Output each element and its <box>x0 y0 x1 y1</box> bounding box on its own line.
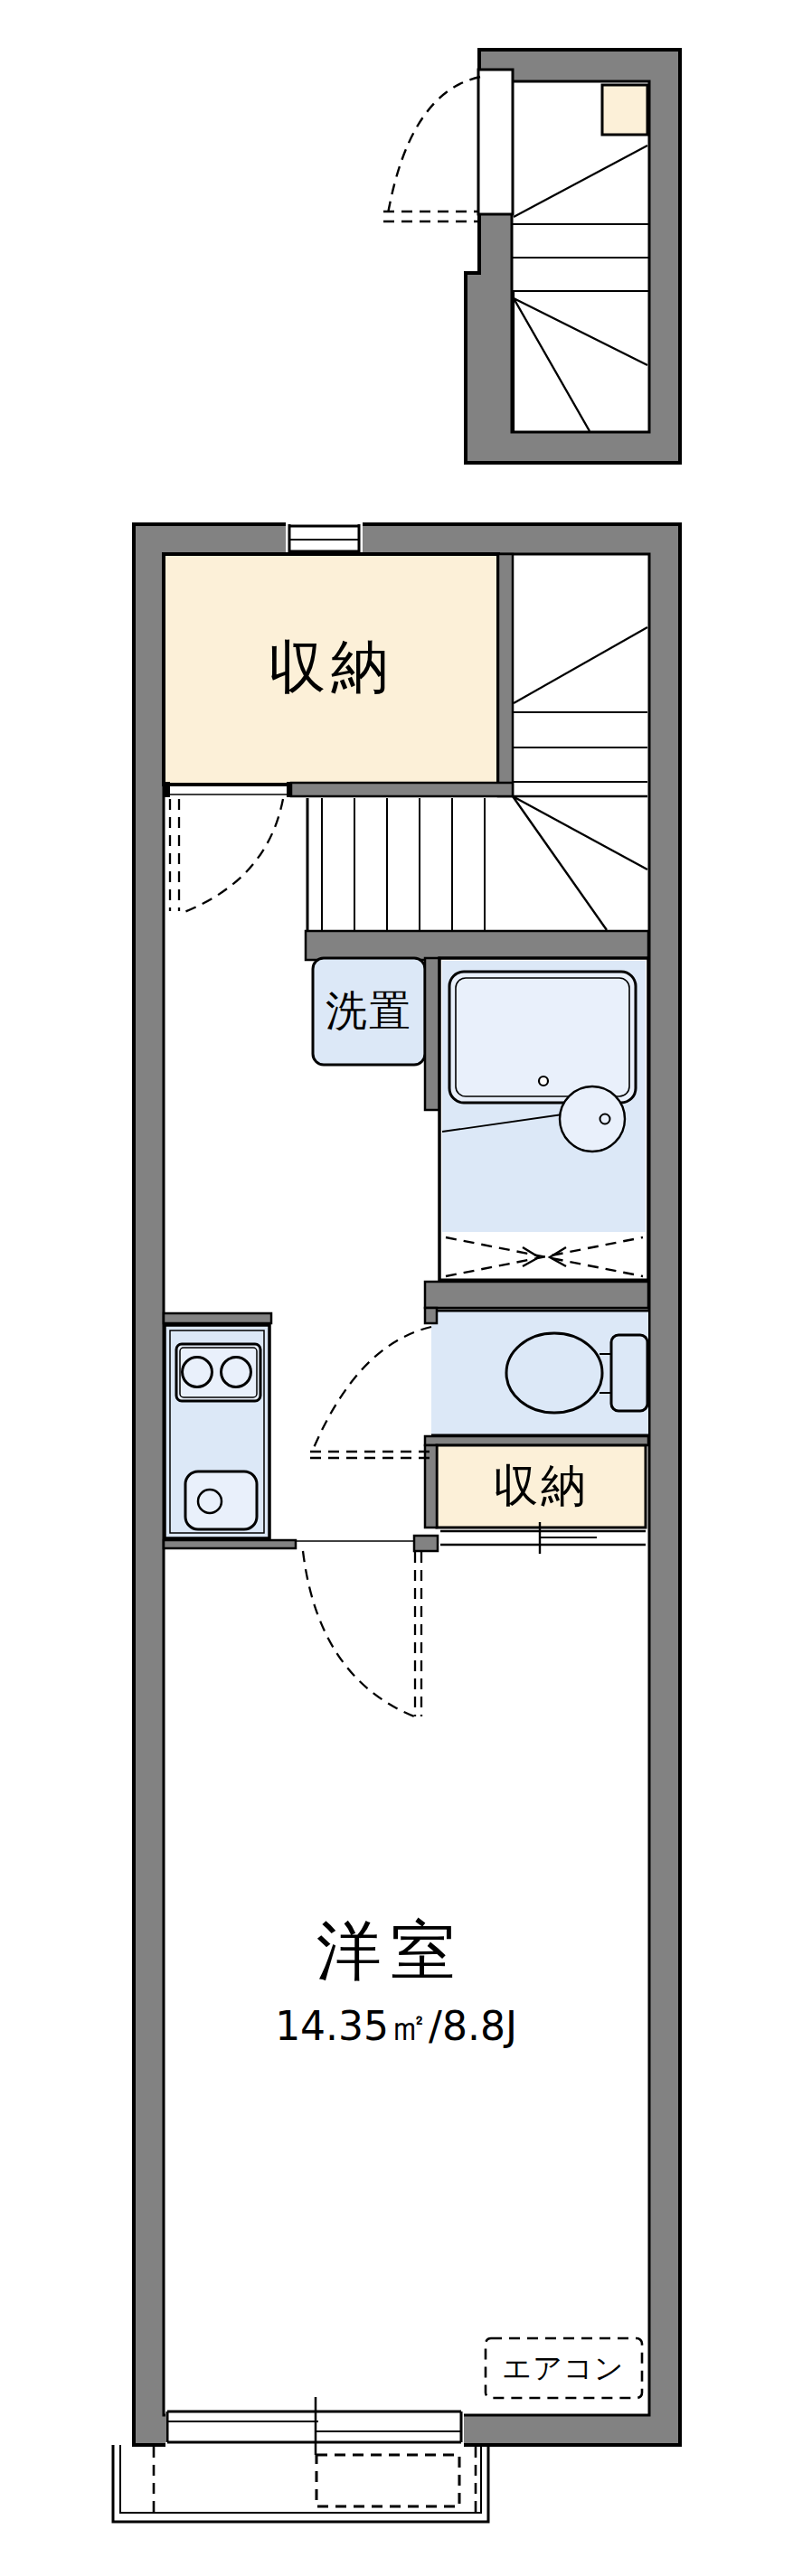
entry-door-leaf <box>478 70 513 214</box>
laundry-label: 洗置 <box>326 990 412 1031</box>
bath-folding-door <box>439 1234 648 1280</box>
toilet-bowl <box>506 1333 602 1413</box>
storage-top-door <box>170 799 283 912</box>
entry-door-swing-arc <box>387 77 480 219</box>
storage-mid-label: 収納 <box>493 1463 589 1509</box>
balcony-partitions <box>154 2447 476 2519</box>
bathroom <box>439 958 648 1282</box>
room-north-wall <box>164 1540 296 1548</box>
upper-stairs <box>512 146 648 432</box>
north-window <box>286 521 363 558</box>
kitchen-wall-stub-top <box>164 1313 271 1323</box>
room-door-jamb <box>414 1536 438 1551</box>
bath-toilet-wall <box>425 1282 648 1308</box>
balcony <box>113 2445 488 2522</box>
south-window <box>165 2397 464 2455</box>
toilet-tank <box>611 1335 647 1411</box>
wash-basin <box>560 1086 625 1152</box>
balcony-equipment-pad <box>316 2455 459 2506</box>
floor-plan: 収納 洗置 収納 洋室 14.35㎡/8.8J エアコン <box>0 0 812 2576</box>
storage-top-label: 収納 <box>268 638 394 696</box>
bathtub-drain <box>539 1076 548 1086</box>
main-unit <box>134 521 680 2455</box>
toilet-room <box>425 1308 648 1436</box>
kitchen <box>164 1313 271 1538</box>
main-room-label: 洋室 <box>316 1918 465 1983</box>
stove-burner-left <box>183 1358 212 1387</box>
shoe-cabinet <box>602 85 647 135</box>
stair-bottom-wall <box>306 931 648 960</box>
storage-stair-partition <box>498 554 513 796</box>
entry-door-closed-lines <box>383 212 478 221</box>
aircon-label: エアコン <box>503 2354 625 2383</box>
main-room-area-label: 14.35㎡/8.8J <box>275 2007 517 2046</box>
stove-burner-right <box>222 1358 251 1387</box>
floor-plan-drawing <box>0 0 812 2576</box>
upper-stair-block <box>383 50 680 463</box>
laundry-bath-partition <box>425 958 439 1110</box>
toilet-door <box>310 1327 431 1458</box>
storage-bottom-wall <box>291 783 513 796</box>
main-room-door <box>303 1551 421 1716</box>
